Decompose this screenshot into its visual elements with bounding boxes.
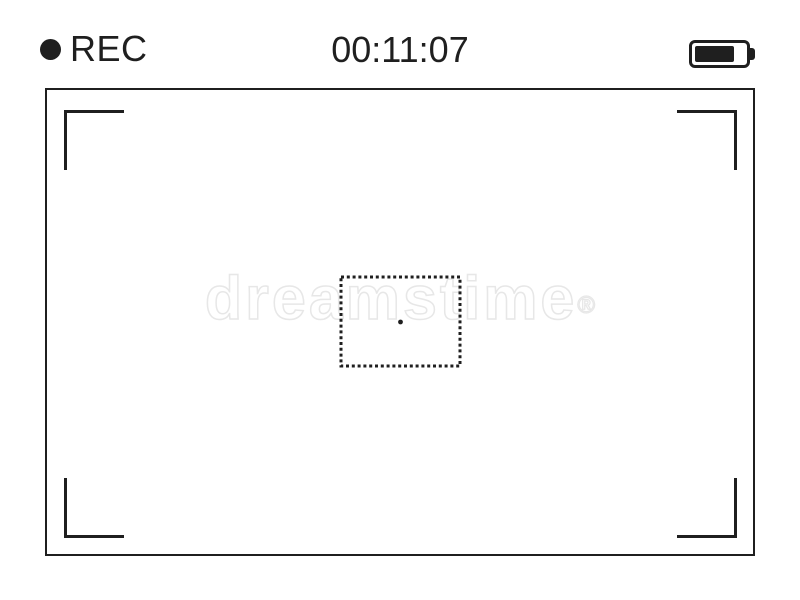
battery-icon [689, 40, 750, 68]
battery-fill [695, 46, 734, 62]
focus-center-dot [398, 320, 403, 325]
corner-bracket-top-right [677, 110, 737, 170]
focus-frame[interactable] [338, 274, 463, 370]
camera-viewfinder: REC 00:11:07 dreamstime® [0, 0, 800, 600]
corner-bracket-bottom-left [64, 478, 124, 538]
corner-bracket-top-left [64, 110, 124, 170]
battery-terminal [750, 48, 755, 60]
corner-bracket-bottom-right [677, 478, 737, 538]
recording-timestamp: 00:11:07 [0, 32, 800, 68]
